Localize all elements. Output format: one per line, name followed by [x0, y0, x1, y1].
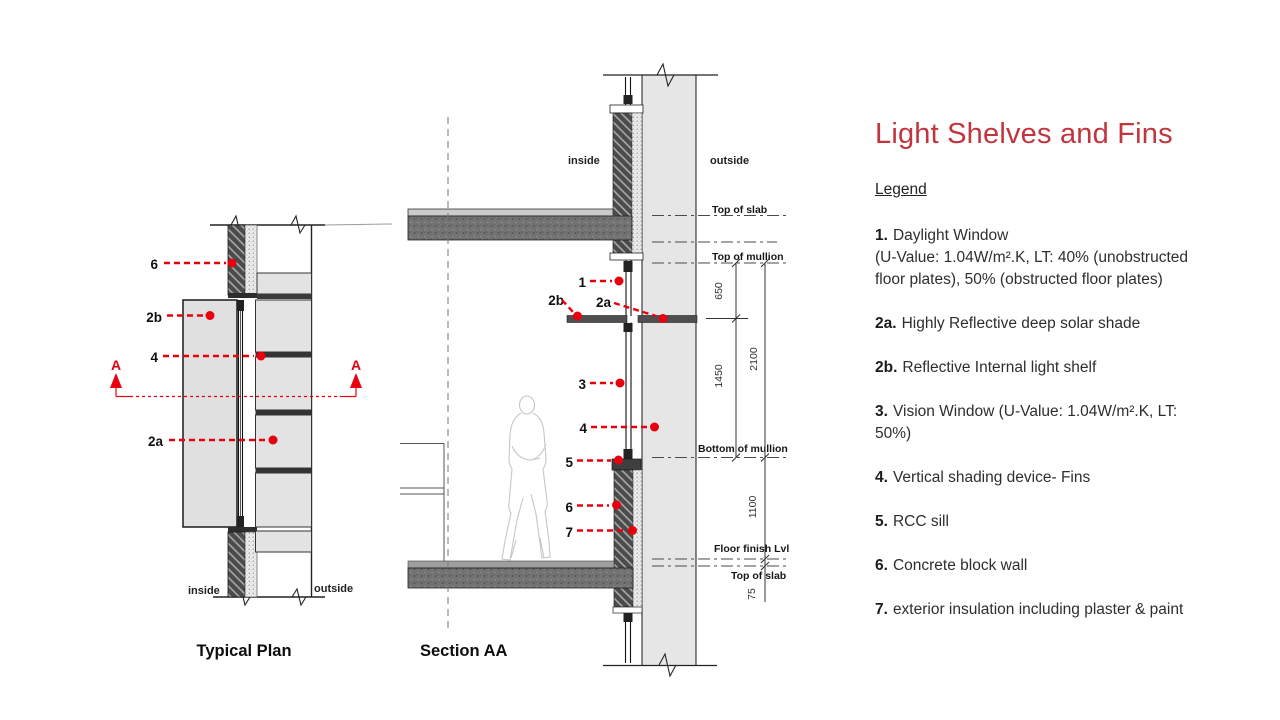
dim-650: 650	[713, 282, 725, 300]
callout-4: 4	[579, 421, 587, 436]
legend-item-number: 5.	[875, 513, 888, 530]
human-figure	[502, 396, 550, 560]
legend-item-1: 1.Daylight Window (U-Value: 1.04W/m².K, …	[875, 225, 1275, 291]
section-marker-left: A	[111, 357, 121, 373]
callout-2b: 2b	[146, 310, 162, 325]
plan-insulation-upper	[245, 225, 257, 295]
section-floor-finish-lower	[408, 561, 614, 568]
plan-wall-head	[228, 293, 257, 298]
callout-dot-4	[650, 423, 659, 432]
section-fin-band	[642, 75, 696, 665]
section-aa: Top of slab Top of mullion Bottom of mul…	[400, 64, 790, 676]
architectural-drawing: inside outside Typical Plan 6 2b 4 2a A	[0, 0, 860, 720]
legend-item-2a: 2a.Highly Reflective deep solar shade	[875, 313, 1275, 335]
plan-inside-label: inside	[188, 585, 220, 597]
legend-item-text: Daylight Window (U-Value: 1.04W/m².K, LT…	[875, 227, 1188, 288]
plan-fin	[256, 468, 312, 473]
legend-item-5: 5.RCC sill	[875, 511, 1275, 533]
callout-1: 1	[578, 275, 586, 290]
dim-2100: 2100	[748, 347, 760, 371]
interior-partition	[400, 444, 444, 564]
legend-panel: Light Shelves and Fins Legend 1.Daylight…	[875, 118, 1275, 643]
level-top-of-mullion: Top of mullion	[712, 251, 784, 263]
callout-3: 3	[578, 377, 586, 392]
legend-item-text: Highly Reflective deep solar shade	[902, 315, 1141, 332]
plan-wall-head	[228, 527, 257, 532]
legend-item-number: 2b.	[875, 359, 897, 376]
plan-caption: Typical Plan	[196, 642, 291, 660]
level-top-of-slab-lower: Top of slab	[731, 570, 786, 582]
section-inside-label: inside	[568, 155, 600, 167]
section-slab-upper	[408, 216, 632, 240]
plan-shade-block-bottom	[256, 531, 312, 552]
section-floor-finish-upper	[408, 209, 613, 216]
section-arrow-right	[350, 373, 362, 388]
callout-5: 5	[565, 455, 573, 470]
dimension-ticks	[732, 259, 769, 570]
section-arrow-left	[110, 373, 122, 388]
section-solar-shade	[638, 316, 697, 323]
legend-item-number: 7.	[875, 601, 888, 618]
section-outside-label: outside	[710, 155, 749, 167]
section-vision-window	[624, 323, 633, 460]
legend-item-6: 6.Concrete block wall	[875, 555, 1275, 577]
legend-item-2b: 2b.Reflective Internal light shelf	[875, 357, 1275, 379]
legend-item-4: 4.Vertical shading device- Fins	[875, 467, 1275, 489]
section-caption: Section AA	[420, 642, 507, 660]
typical-plan: inside outside Typical Plan 6 2b 4 2a A	[110, 216, 392, 660]
level-bottom-of-mullion: Bottom of mullion	[698, 443, 788, 455]
plan-outside-label: outside	[314, 583, 353, 595]
dim-1100: 1100	[747, 496, 759, 519]
plan-fin	[256, 410, 312, 415]
plan-light-shelf	[183, 300, 237, 527]
plan-solar-shade-column	[256, 300, 312, 527]
dim-75: 75	[746, 588, 758, 600]
plan-fin-edge	[257, 294, 312, 299]
slide-canvas: inside outside Typical Plan 6 2b 4 2a A	[0, 0, 1280, 720]
section-insulation-upper	[632, 113, 642, 259]
level-floor-finish: Floor finish Lvl	[714, 543, 789, 555]
plan-window-mullion	[237, 300, 244, 527]
callout-dot-3	[616, 379, 625, 388]
level-top-of-slab-upper: Top of slab	[712, 204, 767, 216]
section-mullion-below	[624, 613, 633, 663]
callout-dot-4	[257, 352, 266, 361]
callout-6: 6	[150, 257, 158, 272]
legend-item-number: 1.	[875, 227, 888, 244]
callout-dot-5	[614, 456, 623, 465]
legend-item-text: Vision Window (U-Value: 1.04W/m².K, LT: …	[875, 403, 1177, 442]
section-head-cap	[610, 105, 643, 113]
callout-dot-6	[228, 259, 237, 268]
callout-7: 7	[565, 525, 573, 540]
callout-dot-7	[628, 526, 637, 535]
section-insulation-lower	[633, 470, 642, 610]
legend-item-number: 3.	[875, 403, 888, 420]
callout-dot-1	[615, 277, 624, 286]
plan-shade-block-top	[257, 273, 312, 294]
plan-block-wall-lower	[228, 532, 245, 597]
legend-item-7: 7.exterior insulation including plaster …	[875, 599, 1275, 621]
legend-item-number: 2a.	[875, 315, 897, 332]
callout-4: 4	[150, 350, 158, 365]
section-mullion-above	[624, 77, 633, 105]
callout-dot-6	[612, 501, 621, 510]
legend-item-number: 6.	[875, 557, 888, 574]
legend-item-text: Concrete block wall	[893, 557, 1027, 574]
callout-dot-2b	[573, 312, 582, 321]
section-marker-right: A	[351, 357, 361, 373]
section-slab-lower	[408, 568, 633, 588]
callout-dot-2a	[659, 314, 668, 323]
legend-heading: Legend	[875, 181, 1275, 199]
legend-item-text: exterior insulation including plaster & …	[893, 601, 1183, 618]
legend-item-number: 4.	[875, 469, 888, 486]
page-title: Light Shelves and Fins	[875, 118, 1275, 151]
callout-6: 6	[565, 500, 573, 515]
plan-top-boundary-ext	[325, 224, 392, 225]
callout-2a: 2a	[596, 295, 612, 310]
legend-item-text: Vertical shading device- Fins	[893, 469, 1090, 486]
section-wall-base-cap	[613, 607, 642, 613]
callout-2a: 2a	[148, 434, 164, 449]
legend-item-3: 3.Vision Window (U-Value: 1.04W/m².K, LT…	[875, 401, 1275, 445]
dim-1450: 1450	[713, 364, 725, 388]
callout-dot-2a	[269, 436, 278, 445]
section-mullion-cap	[610, 253, 643, 260]
legend-item-text: Reflective Internal light shelf	[902, 359, 1096, 376]
legend-item-text: RCC sill	[893, 513, 949, 530]
callout-dot-2b	[206, 311, 215, 320]
